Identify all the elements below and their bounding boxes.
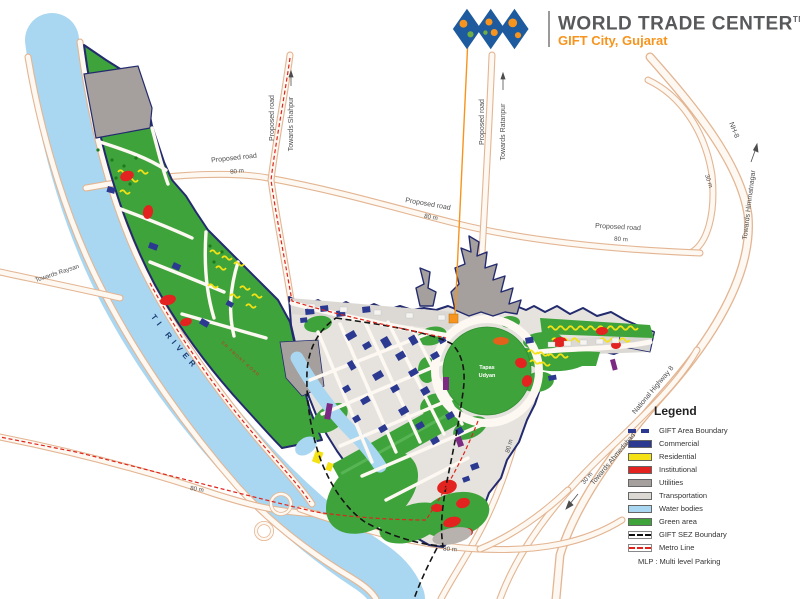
wtc-header: WORLD TRADE CENTERTM GIFT City, Gujarat <box>452 6 800 52</box>
legend-item-gift-sez-boundary: GIFT SEZ Boundary <box>628 529 792 540</box>
roundabout-label-line2: Udyan <box>479 373 496 379</box>
brand-title-text: WORLD TRADE CENTER <box>558 13 793 34</box>
legend-swatch-gift-area-boundary <box>628 429 652 433</box>
legend-swatch-green-area <box>628 518 652 526</box>
legend-swatch-institutional <box>628 466 652 474</box>
gift-city-master-plan: SABARMATI RIVER SABARMATI RIVER FRONT RO… <box>0 0 800 599</box>
legend-mlp-note: MLP : Multi level Parking <box>628 557 792 566</box>
header-titles: WORLD TRADE CENTERTM GIFT City, Gujarat <box>558 10 800 48</box>
utilities-north-shapes <box>416 236 521 316</box>
legend-label: Commercial <box>659 439 699 448</box>
legend-item-commercial: Commercial <box>628 438 792 449</box>
legend-label: Water bodies <box>659 504 703 513</box>
legend-item-metro-line: Metro Line <box>628 542 792 553</box>
road-label-towards-ratanpur: Towards Ratanpur <box>500 103 507 160</box>
legend-label: Metro Line <box>659 543 694 552</box>
legend-item-institutional: Institutional <box>628 464 792 475</box>
legend-swatch-metro-line <box>628 544 652 552</box>
legend-item-transportation: Transportation <box>628 490 792 501</box>
legend-item-water-bodies: Water bodies <box>628 503 792 514</box>
legend-swatch-commercial <box>628 440 652 448</box>
header-divider <box>548 11 550 47</box>
legend-item-residential: Residential <box>628 451 792 462</box>
legend-label: Residential <box>659 452 696 461</box>
globe-diamond-3 <box>500 9 528 49</box>
road-label-80m-mid: 80 m <box>424 213 439 222</box>
legend-label: Transportation <box>659 491 707 500</box>
orange-building <box>493 337 509 345</box>
road-label-proposed-road-ratanpur: Proposed road <box>479 99 486 145</box>
road-label-towards-shahpur: Towards Shahpur <box>288 96 295 151</box>
road-label-80m-east: 80 m <box>614 236 628 244</box>
wtc-location-marker <box>449 314 458 323</box>
road-label-nh8: NH-8 <box>727 121 740 139</box>
legend-label: Green area <box>659 517 697 526</box>
brand-title: WORLD TRADE CENTERTM <box>558 10 800 34</box>
legend-swatch-gift-sez-boundary <box>628 531 652 539</box>
road-label-proposed-road-nw: Proposed road <box>211 153 258 165</box>
roundabout-label-line1: Tapas <box>479 365 495 371</box>
legend-item-gift-area-boundary: GIFT Area Boundary <box>628 425 792 436</box>
central-roundabout <box>435 319 539 423</box>
road-label-proposed-road-east: Proposed road <box>595 223 641 232</box>
legend-label: GIFT Area Boundary <box>659 426 728 435</box>
legend-label: Utilities <box>659 478 683 487</box>
wtc-logo <box>452 6 540 52</box>
legend-swatch-residential <box>628 453 652 461</box>
road-label-80m-sw: 80 m <box>190 485 205 494</box>
brand-trademark: TM <box>793 15 800 24</box>
legend-swatch-transportation <box>628 492 652 500</box>
legend-item-green-area: Green area <box>628 516 792 527</box>
legend-title: Legend <box>628 404 792 418</box>
legend-label: GIFT SEZ Boundary <box>659 530 727 539</box>
legend-swatch-utilities <box>628 479 652 487</box>
road-label-proposed-road-shahpur: Proposed road <box>269 95 276 141</box>
road-label-80m-nw: 80 m <box>230 167 244 175</box>
road-label-80m-south: 80 m <box>443 546 457 554</box>
legend-swatch-water-bodies <box>628 505 652 513</box>
brand-subtitle: GIFT City, Gujarat <box>558 34 800 48</box>
legend-label: Institutional <box>659 465 697 474</box>
utilities-block <box>84 66 152 138</box>
map-legend: Legend GIFT Area Boundary Commercial Res… <box>628 404 792 566</box>
legend-item-utilities: Utilities <box>628 477 792 488</box>
